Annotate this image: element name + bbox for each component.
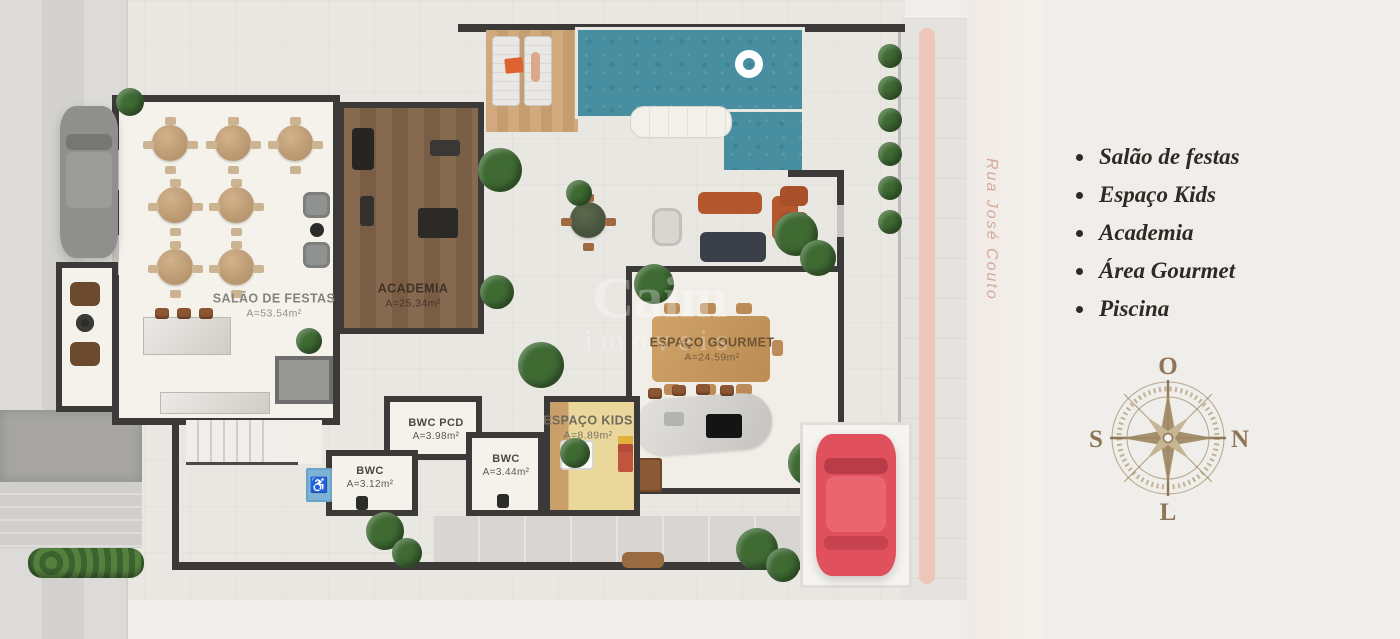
plant [478, 148, 522, 192]
chairs [165, 117, 176, 125]
floorplan-screenshot: Rua José Couto SALÃO DE FESTAS A=53.54m²… [0, 0, 1400, 639]
chairs [228, 117, 239, 125]
room-area: A=3.44m² [483, 467, 530, 480]
legend-label: Salão de festas [1099, 144, 1240, 170]
plant [634, 264, 674, 304]
gym-equipment [430, 140, 460, 156]
plant [480, 275, 514, 309]
room-name: SALÃO DE FESTAS [213, 292, 335, 306]
chair [700, 303, 716, 314]
gym-bench [360, 196, 374, 226]
treadmill [352, 128, 374, 170]
person-sunbathing [531, 52, 540, 82]
plant [518, 342, 564, 388]
plant [566, 180, 592, 206]
round-table [147, 120, 193, 166]
street-name: Rua José Couto [982, 158, 1000, 348]
sink [664, 412, 684, 426]
round-table [152, 182, 198, 228]
bench [622, 552, 664, 568]
chairs [231, 179, 242, 187]
round-table [213, 182, 259, 228]
buffet-counter [143, 317, 231, 355]
room-name: BWC [492, 453, 519, 465]
toilet [356, 496, 368, 510]
pool-l-extension [724, 112, 802, 170]
round-table [213, 244, 259, 290]
bullet-dot-icon [1076, 154, 1083, 161]
weight-rack [418, 208, 458, 238]
room-area: A=3.12m² [347, 479, 394, 492]
terrace-chair [70, 282, 100, 306]
sofa-dark [700, 232, 766, 262]
red-car [816, 434, 896, 576]
stool [720, 385, 734, 396]
gray-car [60, 106, 118, 258]
legend-label: Espaço Kids [1099, 182, 1216, 208]
compass-letter-west: O [1158, 353, 1177, 380]
stool [672, 385, 686, 396]
lounger-red [780, 186, 808, 206]
room-name: BWC [356, 465, 383, 477]
legend-item: Espaço Kids [1076, 182, 1240, 208]
car-windshield [824, 458, 888, 474]
room-label-bwc-mid: BWC A=3.44m² [483, 453, 530, 479]
plant [116, 88, 144, 116]
wall-east-horizontal [788, 170, 844, 177]
armchair [303, 242, 330, 268]
chairs [170, 179, 181, 187]
stool [696, 384, 710, 395]
bush [878, 76, 902, 100]
chairs [290, 117, 301, 125]
plant [766, 548, 800, 582]
wall-stair-left [172, 420, 179, 568]
plant [296, 328, 322, 354]
stool [177, 308, 191, 319]
window [837, 205, 844, 237]
room-area: A=8.89m² [543, 429, 633, 442]
room-name: BWC PCD [408, 417, 463, 429]
room-area: A=53.54m² [213, 307, 335, 320]
stool [648, 388, 662, 399]
kitchen-island [634, 391, 774, 456]
legend-label: Academia [1099, 220, 1194, 246]
pool-float-ring-icon [735, 50, 763, 78]
bush [878, 108, 902, 132]
chairs [231, 241, 242, 249]
room-label-gourmet: ESPAÇO GOURMET A=24.59m² [650, 336, 775, 365]
walkway-band [0, 482, 142, 548]
chair [736, 303, 752, 314]
lounge-chair-gray [652, 208, 682, 246]
road-pink-stripe [919, 28, 935, 584]
compass-letter-north: N [1231, 426, 1249, 453]
legend-item: Salão de festas [1076, 144, 1240, 170]
amenities-legend: Salão de festas Espaço Kids Academia Áre… [1076, 144, 1240, 322]
legend-item: Área Gourmet [1076, 258, 1240, 284]
accessibility-icon: ♿ [306, 468, 332, 502]
armchair [303, 192, 330, 218]
sink-vanity [160, 392, 270, 414]
room-label-kids: ESPAÇO KIDS A=8.89m² [543, 414, 633, 443]
legend-label: Área Gourmet [1099, 258, 1235, 284]
terrace-table [76, 314, 94, 332]
cooktop [706, 414, 742, 438]
room-label-bwc-small: BWC A=3.12m² [347, 465, 394, 491]
car-rear-window [824, 536, 888, 550]
room-area: A=25.34m² [378, 297, 449, 310]
legend-item: Academia [1076, 220, 1240, 246]
car-roof [66, 152, 112, 208]
pool [578, 30, 802, 116]
stool [155, 308, 169, 319]
stair-landing [274, 420, 322, 464]
bullet-dot-icon [1076, 268, 1083, 275]
room-label-bwc-pcd: BWC PCD A=3.98m² [408, 417, 463, 443]
plant [392, 538, 422, 568]
bush [878, 176, 902, 200]
car-windshield [66, 134, 112, 150]
road [967, 0, 1043, 639]
stool [199, 308, 213, 319]
toilet [497, 494, 509, 508]
room-area: A=24.59m² [650, 351, 775, 364]
room-area: A=3.98m² [408, 431, 463, 444]
compass-letter-east: L [1160, 499, 1177, 526]
bullet-dot-icon [1076, 230, 1083, 237]
bullet-dot-icon [1076, 192, 1083, 199]
plant [560, 438, 590, 468]
room-name: ESPAÇO GOURMET [650, 336, 775, 350]
staircase [186, 420, 274, 464]
car-roof [826, 476, 886, 532]
sofa-brown [698, 192, 762, 214]
elevator [275, 356, 333, 404]
plant [800, 240, 836, 276]
towel [504, 57, 523, 74]
compass-letter-south: S [1089, 426, 1103, 453]
round-table [210, 120, 256, 166]
chair [664, 303, 680, 314]
outdoor-sofa-white [630, 106, 732, 138]
terrace-chair [70, 342, 100, 366]
room-name: ACADEMIA [378, 282, 449, 296]
room-label-academia: ACADEMIA A=25.34m² [378, 282, 449, 311]
chairs [170, 241, 181, 249]
legend-item: Piscina [1076, 296, 1240, 322]
room-label-salao: SALÃO DE FESTAS A=53.54m² [213, 292, 335, 321]
round-table [152, 244, 198, 290]
bush [878, 44, 902, 68]
compass-rose-icon: O N S L [1078, 348, 1258, 528]
side-table [310, 223, 324, 237]
hedge-bottom-left [28, 548, 144, 578]
room-name: ESPAÇO KIDS [543, 414, 633, 428]
stair-rail [186, 462, 298, 465]
bush [878, 142, 902, 166]
round-table [272, 120, 318, 166]
bush [878, 210, 902, 234]
wall-bottom [172, 562, 804, 570]
legend-label: Piscina [1099, 296, 1169, 322]
bullet-dot-icon [1076, 306, 1083, 313]
